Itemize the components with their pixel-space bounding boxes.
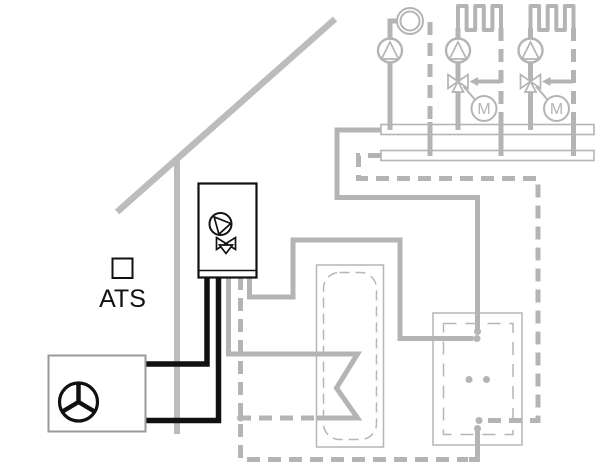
port-dot	[474, 335, 481, 342]
junction-dot	[237, 415, 244, 422]
flow-arrow-icon	[542, 77, 551, 86]
outdoor-indoor-pipes	[146, 277, 219, 421]
radiator-icon	[458, 6, 501, 30]
motor-label: M	[550, 101, 563, 118]
radiator-icon	[531, 6, 574, 30]
pump-icon	[378, 39, 402, 63]
valve-motor-icon: M	[472, 96, 497, 121]
return-pipe-dashed	[241, 277, 469, 460]
motor-label: M	[477, 101, 490, 118]
buffer-port-dot	[483, 376, 490, 383]
schematic-page: M M	[0, 0, 604, 471]
indoor-unit	[199, 184, 257, 278]
port-dot	[476, 417, 483, 424]
supply-manifold	[381, 125, 594, 135]
manifolds	[381, 125, 594, 161]
pump-icon	[446, 39, 470, 63]
double-circle-emitter-inner	[401, 12, 420, 31]
outdoor-temperature-sensor: ATS	[99, 259, 146, 314]
buffer-bottom-pipe	[469, 427, 478, 460]
motor-link-line	[536, 87, 547, 100]
sensor-label: ATS	[99, 285, 146, 313]
return-manifold	[381, 151, 594, 161]
port-dot	[474, 425, 481, 432]
heating-supply-pipe	[250, 240, 474, 339]
buffer-port-dot	[466, 376, 473, 383]
pump-icon	[519, 39, 543, 63]
motor-link-line	[464, 87, 475, 100]
outdoor-unit	[49, 356, 146, 432]
schematic-canvas: M M	[0, 0, 604, 471]
sensor-box-icon	[113, 259, 133, 279]
port-dot	[474, 328, 481, 335]
flow-arrow-icon	[470, 77, 479, 86]
valve-motor-icon: M	[544, 96, 569, 121]
distribution-piping	[337, 130, 538, 421]
circuit1-supply-pipe	[390, 21, 410, 126]
